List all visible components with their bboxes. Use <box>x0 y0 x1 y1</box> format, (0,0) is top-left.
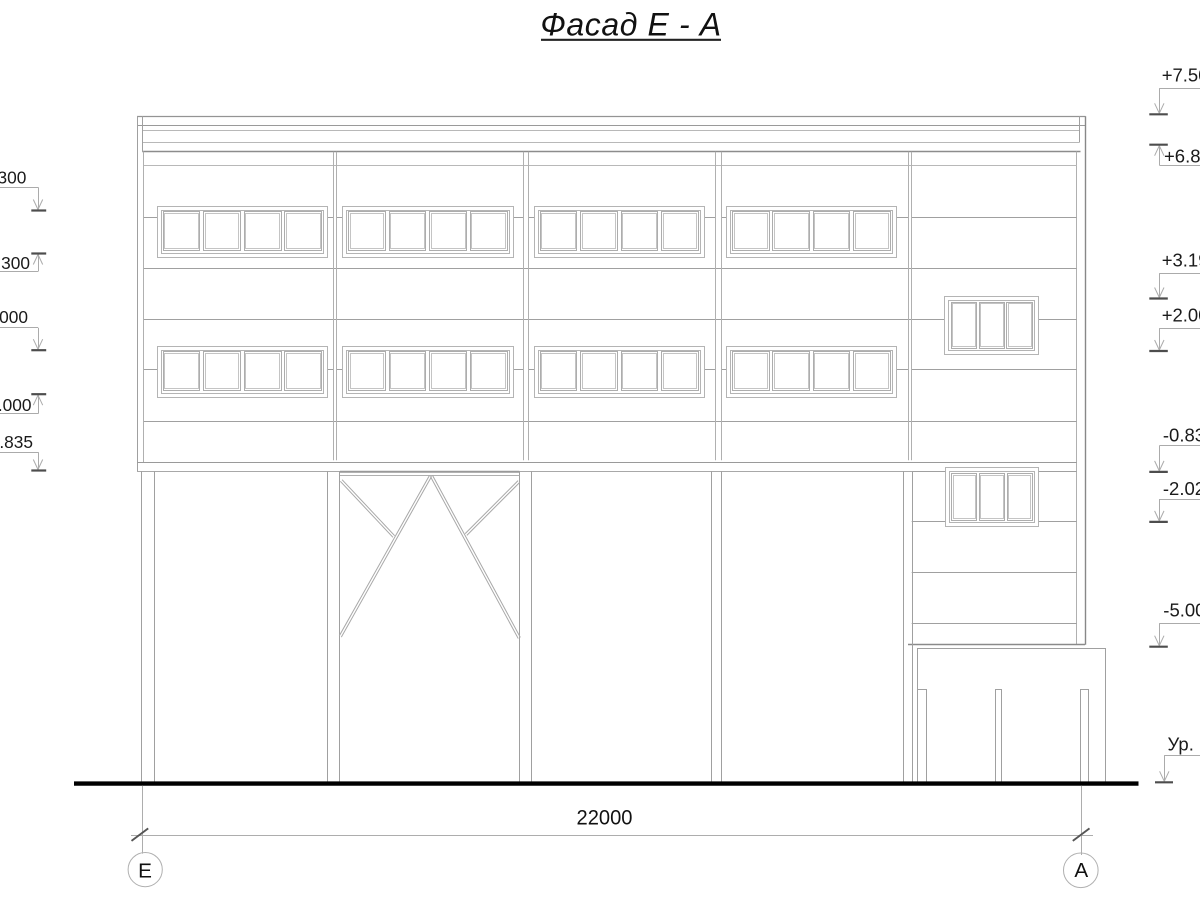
svg-text:000: 000 <box>0 307 28 327</box>
svg-text:Е: Е <box>138 860 152 883</box>
svg-text:.300: .300 <box>0 253 30 273</box>
svg-text:А: А <box>1074 859 1088 882</box>
svg-text:+2.000: +2.000 <box>1162 305 1200 326</box>
svg-text:+6.840: +6.840 <box>1164 145 1200 166</box>
svg-text:.000: .000 <box>0 395 32 415</box>
svg-text:-2.020: -2.020 <box>1163 478 1200 499</box>
svg-text:300: 300 <box>0 167 26 187</box>
svg-text:+3.190: +3.190 <box>1162 250 1200 271</box>
svg-text:-5.000: -5.000 <box>1163 600 1200 621</box>
svg-text:+7.500: +7.500 <box>1162 65 1200 86</box>
svg-text:-0.835: -0.835 <box>1163 424 1200 445</box>
svg-text:22000: 22000 <box>577 806 633 830</box>
svg-text:Ур.: Ур. <box>1168 734 1194 755</box>
svg-text:Фасад Е - А: Фасад Е - А <box>540 7 721 43</box>
svg-text:.835: .835 <box>0 432 33 452</box>
